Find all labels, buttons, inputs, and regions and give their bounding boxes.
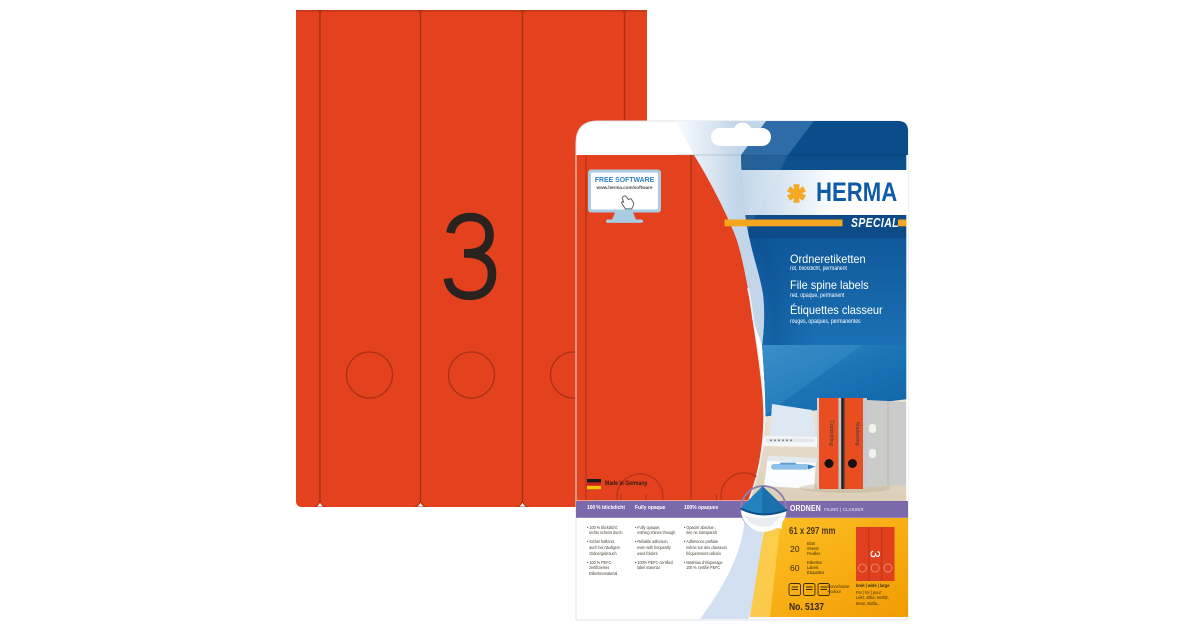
svg-text:3: 3 xyxy=(867,550,883,558)
svg-text:Controlling: Controlling xyxy=(828,420,834,446)
svg-text:Marketing: Marketing xyxy=(854,422,860,446)
